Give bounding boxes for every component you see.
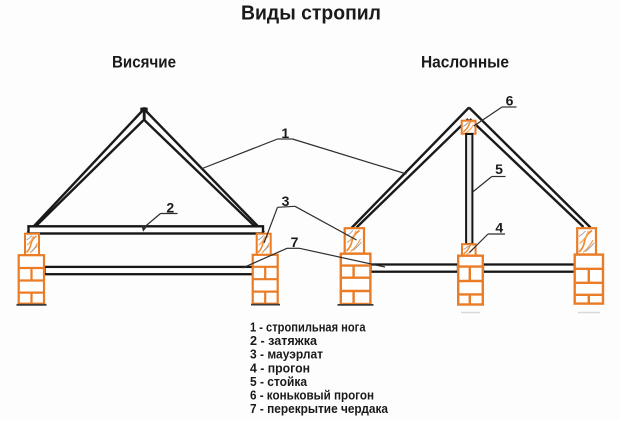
svg-text:Наслонные: Наслонные: [421, 53, 509, 72]
svg-text:Висячие: Висячие: [112, 53, 176, 72]
svg-text:7: 7: [291, 234, 299, 250]
svg-text:1: 1: [281, 125, 289, 141]
svg-text:7 - перекрытие чердака: 7 - перекрытие чердака: [250, 401, 389, 416]
svg-text:4: 4: [495, 220, 503, 236]
svg-text:5: 5: [495, 161, 503, 177]
svg-text:2: 2: [166, 200, 174, 216]
svg-text:Виды стропил: Виды стропил: [241, 3, 381, 25]
svg-text:3: 3: [282, 193, 290, 209]
svg-text:6: 6: [506, 93, 514, 109]
